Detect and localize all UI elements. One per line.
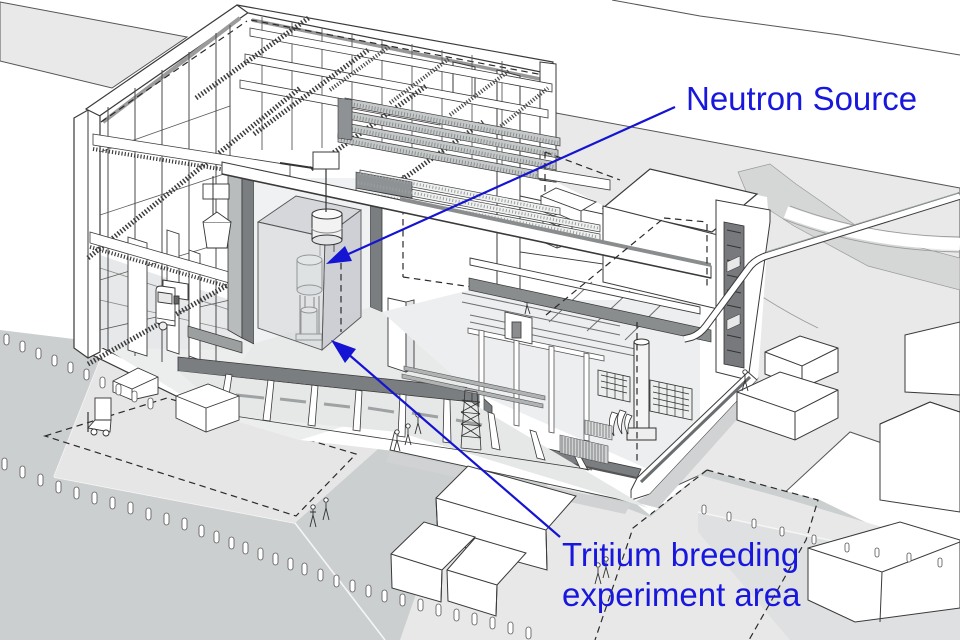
svg-text:Neutron Source: Neutron Source: [686, 80, 917, 117]
svg-text:Tritium breeding: Tritium breeding: [562, 536, 799, 573]
svg-text:experiment area: experiment area: [562, 576, 801, 613]
